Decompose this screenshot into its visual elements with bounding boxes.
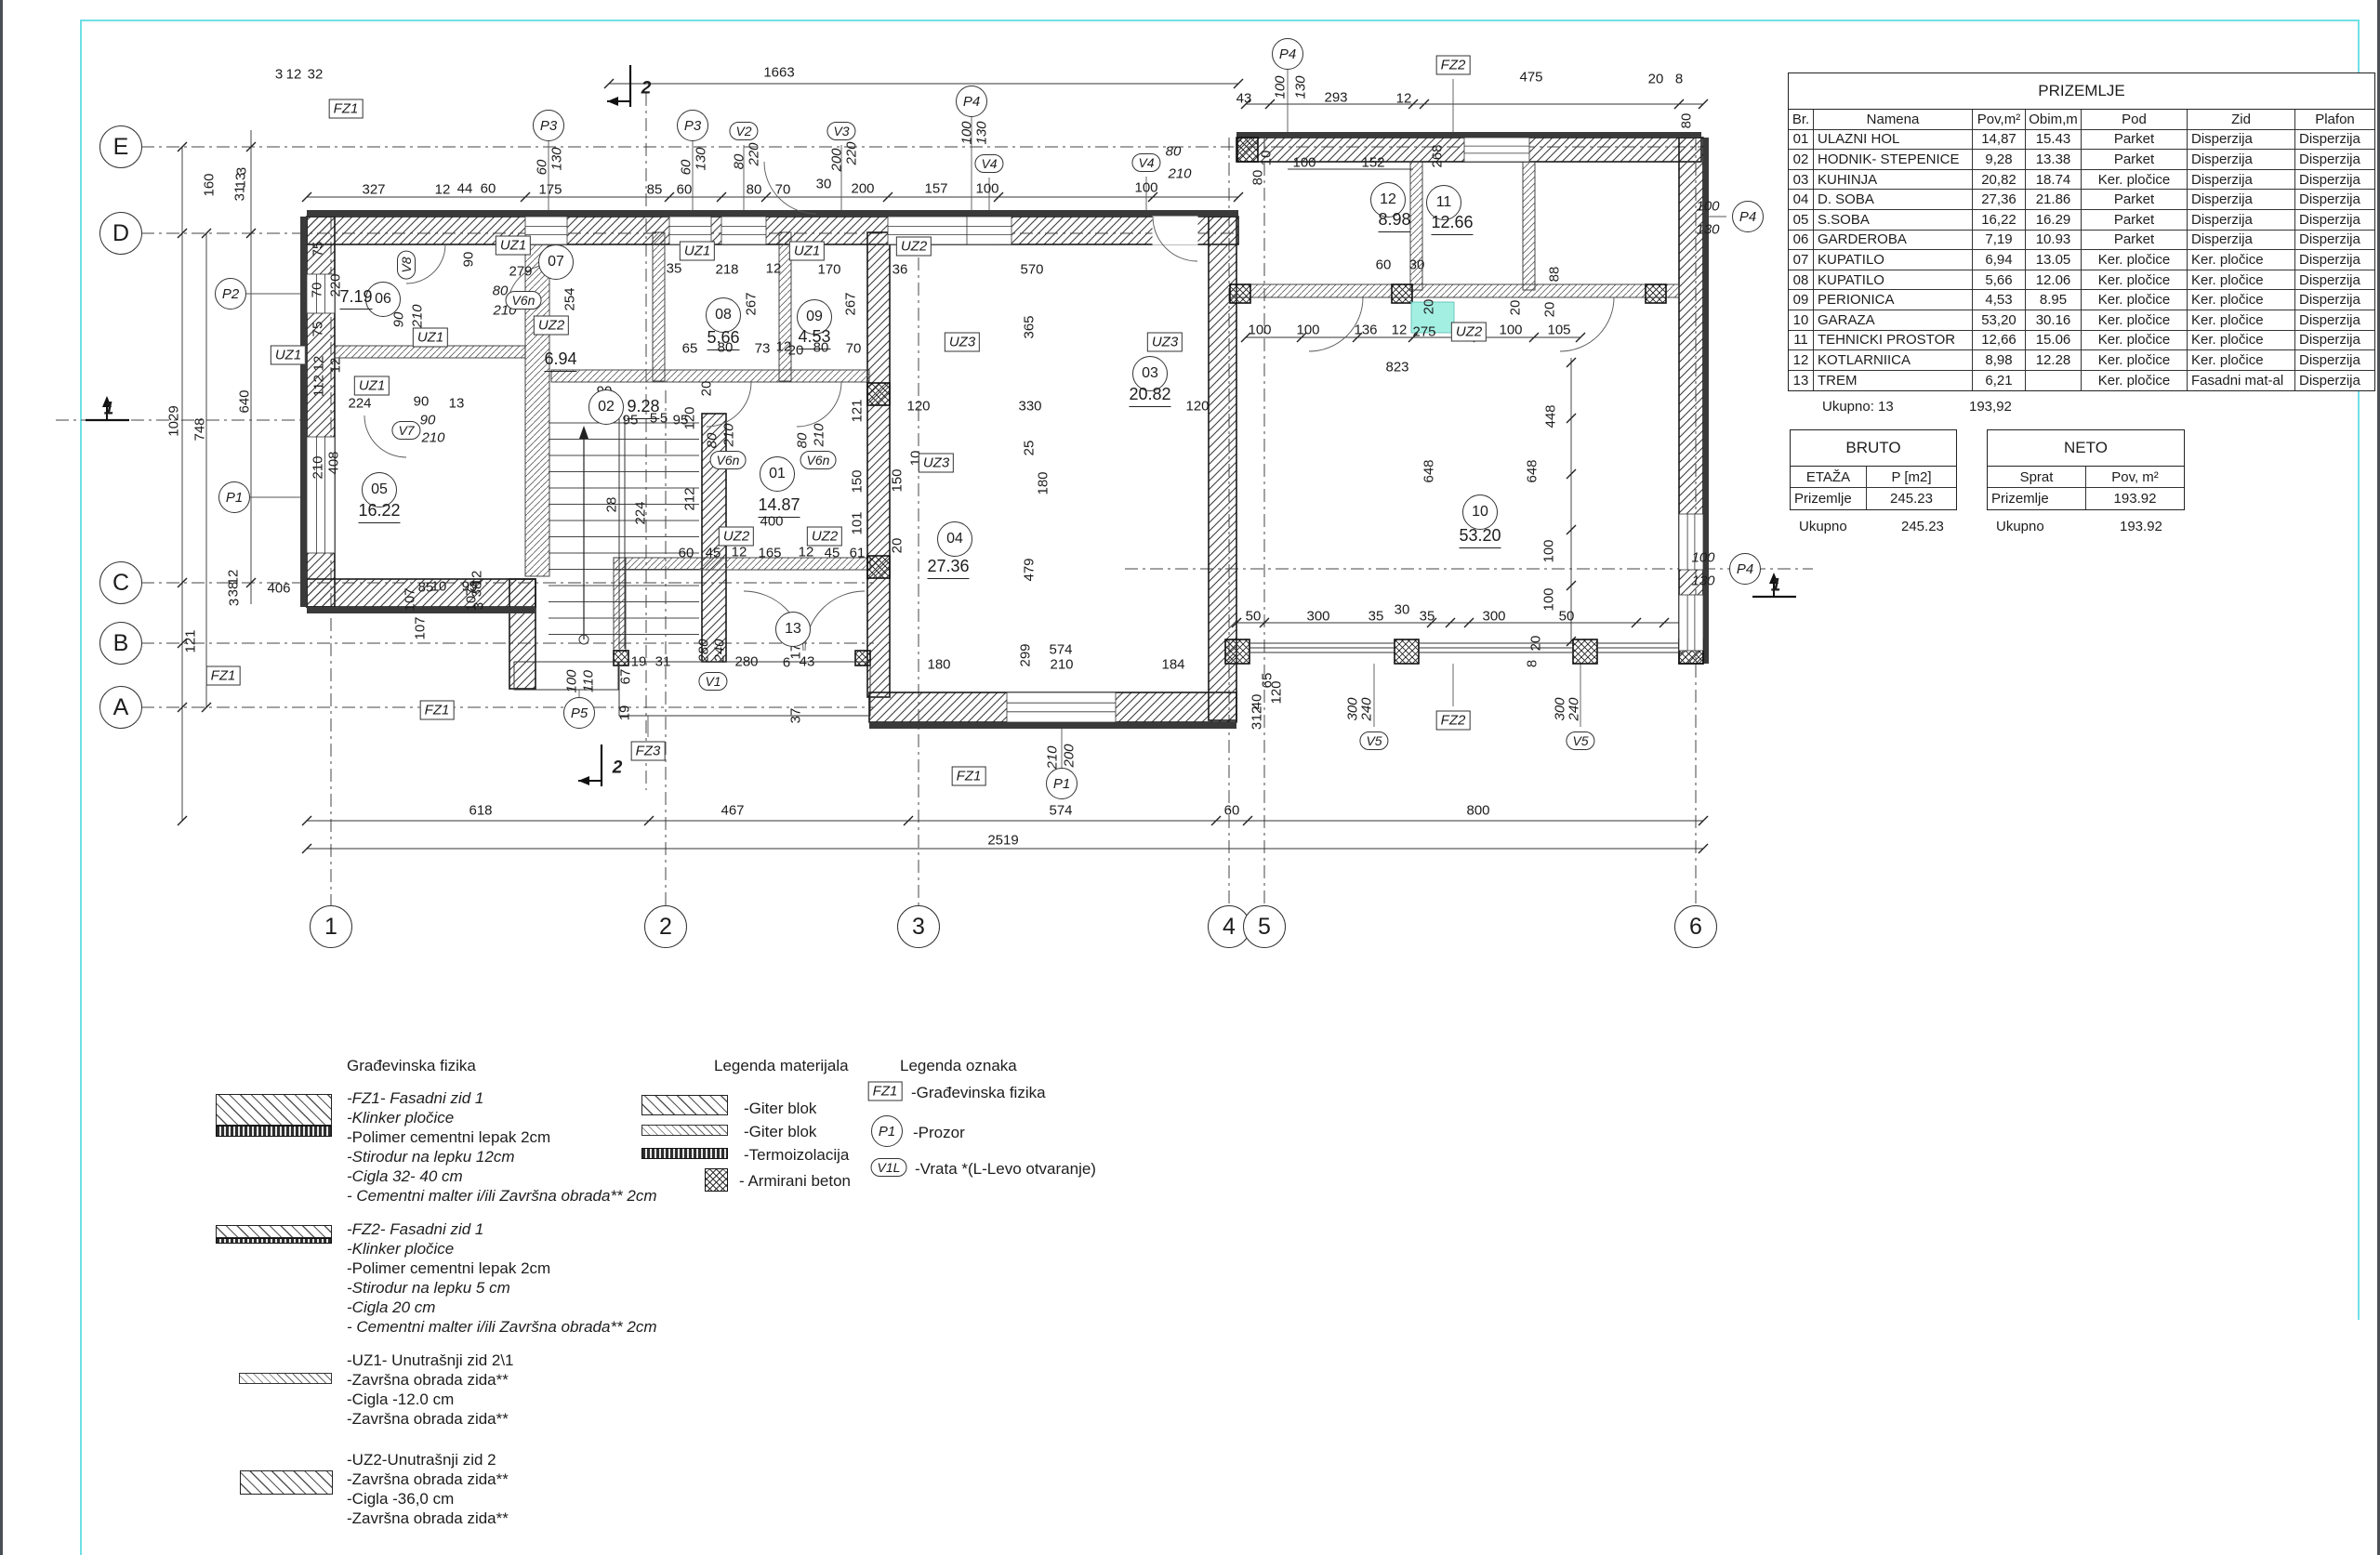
dim-label: 80 bbox=[1680, 113, 1694, 129]
door-marker: V4 bbox=[1131, 153, 1160, 172]
wall-type-tag: FZ1 bbox=[952, 767, 986, 786]
dim-label: 37 bbox=[789, 708, 803, 724]
dim-label: 448 bbox=[1544, 404, 1558, 428]
table-cell: 8,98 bbox=[1973, 350, 2026, 371]
legend-oznaka-label: -Vrata *(L-Levo otvaranje) bbox=[915, 1159, 1096, 1179]
dim-label: 80 bbox=[733, 154, 747, 170]
dim-label: 130 bbox=[1691, 574, 1714, 588]
dim-label: 90 bbox=[414, 395, 430, 409]
dim-label: 3 bbox=[235, 167, 249, 175]
legend-gf-section-text: -UZ1- Unutrašnji zid 2\1-Završna obrada … bbox=[347, 1351, 514, 1429]
table-cell: 05 bbox=[1789, 210, 1814, 231]
grid-col-bubble: 1 bbox=[310, 905, 352, 948]
prizemlje-table: PRIZEMLJEBr.NamenaPov,m²Obim,mPodZidPlaf… bbox=[1788, 72, 2375, 391]
table-cell: Disperzija bbox=[2188, 210, 2295, 231]
wall-type-tag: UZ1 bbox=[413, 328, 448, 348]
neto-footer-value: 193.92 bbox=[2120, 519, 2162, 534]
table-cell: Ker. pločice bbox=[2082, 270, 2188, 291]
table-cell: Disperzija bbox=[2188, 170, 2295, 191]
dim-label: 327 bbox=[362, 183, 385, 197]
bruto-table-title: BRUTO bbox=[1791, 430, 1956, 467]
window-marker: P4 bbox=[956, 86, 987, 117]
dim-label: 2519 bbox=[987, 834, 1018, 848]
legend-material-label: - Armirani beton bbox=[739, 1171, 851, 1191]
legend-line: -Stirodur na lepku 12cm bbox=[347, 1147, 657, 1166]
table-cell: KUPATILO bbox=[1814, 270, 1973, 291]
door-marker: V5 bbox=[1566, 731, 1594, 750]
dim-label: 280 bbox=[697, 639, 711, 662]
table-cell: 02 bbox=[1789, 150, 1814, 170]
dim-label: 20 bbox=[1648, 72, 1664, 86]
dim-label: 30 bbox=[816, 178, 832, 191]
dim-label: 90 bbox=[392, 312, 406, 328]
dim-label: 365 bbox=[1023, 315, 1037, 338]
table-cell: 193.92 bbox=[2086, 488, 2184, 509]
dim-label: 121 bbox=[184, 629, 198, 652]
legend-line: -Završna obrada zida** bbox=[347, 1509, 509, 1528]
dim-label: 648 bbox=[1526, 459, 1540, 482]
dim-label: 12 bbox=[766, 262, 782, 276]
section-marker: 1 bbox=[104, 401, 114, 418]
dim-label: 210 bbox=[421, 431, 444, 445]
dim-label: 80 bbox=[706, 433, 720, 449]
wall-type-tag: UZ2 bbox=[534, 316, 569, 336]
legend-symbol-v1l: V1L bbox=[871, 1158, 907, 1177]
dim-label: 100 bbox=[1696, 200, 1719, 214]
bruto-footer-value: 245.23 bbox=[1901, 519, 1944, 534]
dim-label: 748 bbox=[193, 417, 207, 441]
dim-label: 180 bbox=[1037, 471, 1051, 494]
bruto-footer-label: Ukupno bbox=[1799, 519, 1847, 534]
legend-swatch-fz1-insul bbox=[216, 1126, 332, 1137]
dim-label: 85 bbox=[647, 183, 663, 197]
window-marker: P3 bbox=[533, 110, 564, 141]
table-cell: 4,53 bbox=[1973, 290, 2026, 310]
dim-label: 20 bbox=[1543, 302, 1557, 318]
dim-label: 13 bbox=[449, 397, 465, 411]
table-cell: KOTLARNIICA bbox=[1814, 350, 1973, 371]
legend-line: -Klinker pločice bbox=[347, 1239, 657, 1258]
wall-type-tag: FZ1 bbox=[206, 666, 241, 686]
table-cell: Fasadni mat-al bbox=[2188, 371, 2295, 391]
wall-type-tag: FZ2 bbox=[1436, 711, 1471, 731]
dim-label: 100 bbox=[1274, 75, 1288, 99]
legend-material-label: -Giter blok bbox=[744, 1122, 816, 1141]
wall-type-tag: UZ1 bbox=[271, 346, 306, 365]
table-cell: 8.95 bbox=[2026, 290, 2082, 310]
dim-label: 130 bbox=[1294, 75, 1308, 99]
window-marker: P4 bbox=[1272, 38, 1303, 70]
dim-label: 293 bbox=[1324, 91, 1347, 105]
table-cell: Sprat bbox=[1988, 467, 2086, 488]
wall-type-tag: UZ2 bbox=[807, 527, 842, 547]
legend-swatch-giter_thin bbox=[641, 1125, 728, 1136]
table-cell: 13.05 bbox=[2026, 250, 2082, 270]
table-cell: 12 bbox=[1789, 350, 1814, 371]
dim-label: 80 bbox=[1166, 145, 1182, 159]
window-marker: P2 bbox=[215, 278, 246, 310]
door-marker: V7 bbox=[391, 421, 420, 440]
dim-label: 60 bbox=[680, 160, 694, 176]
room-area-label: 4.53 bbox=[798, 327, 830, 349]
bruto-table: BRUTOETAŽAP [m2]Prizemlje245.23 bbox=[1790, 429, 1957, 510]
table-cell: Disperzija bbox=[2295, 170, 2374, 191]
dim-label: 152 bbox=[1361, 156, 1384, 170]
table-cell: 12,66 bbox=[1973, 331, 2026, 351]
dim-label: 60 bbox=[481, 182, 496, 196]
window-marker: P3 bbox=[677, 110, 708, 141]
window-marker: P1 bbox=[1046, 768, 1078, 799]
dim-label: 299 bbox=[1019, 643, 1033, 666]
table-cell: Ker. pločice bbox=[2082, 350, 2188, 371]
dim-label: 12 bbox=[329, 358, 343, 374]
dim-label: 20 bbox=[700, 381, 714, 397]
dim-label: 267 bbox=[745, 292, 759, 315]
dim-label: 3 bbox=[1250, 722, 1264, 730]
legend-gf-section-text: -FZ1- Fasadni zid 1-Klinker pločice-Poli… bbox=[347, 1088, 657, 1206]
table-cell: 11 bbox=[1789, 331, 1814, 351]
table-cell: 9,28 bbox=[1973, 150, 2026, 170]
table-cell: 6,21 bbox=[1973, 371, 2026, 391]
legend-swatch-termo bbox=[641, 1148, 728, 1159]
legend-line: -Završna obrada zida** bbox=[347, 1409, 514, 1429]
legend-line: -Polimer cementni lepak 2cm bbox=[347, 1258, 657, 1278]
dim-label: 60 bbox=[677, 183, 693, 197]
section-marker: 1 bbox=[1771, 577, 1781, 595]
legend-swatch-giter_bold bbox=[641, 1095, 728, 1115]
door-marker: V6n bbox=[506, 291, 542, 310]
dim-label: 19 bbox=[618, 705, 632, 721]
table-cell: Br. bbox=[1789, 110, 1814, 130]
grid-col-bubble: 3 bbox=[897, 905, 940, 948]
grid-col-bubble: 2 bbox=[644, 905, 687, 948]
dim-label: 73 bbox=[755, 342, 771, 356]
table-cell: 01 bbox=[1789, 130, 1814, 151]
dim-label: 240 bbox=[1360, 697, 1374, 720]
dim-label: 475 bbox=[1519, 71, 1542, 85]
wall-type-tag: UZ2 bbox=[1451, 323, 1487, 342]
wall-type-tag: UZ3 bbox=[919, 454, 954, 473]
table-cell: Ker. pločice bbox=[2188, 290, 2295, 310]
table-cell: Disperzija bbox=[2188, 150, 2295, 170]
dim-label: 210 bbox=[813, 423, 826, 446]
dim-label: 100 bbox=[960, 121, 974, 144]
wall-type-tag: FZ3 bbox=[631, 742, 666, 761]
dim-label: 218 bbox=[715, 263, 738, 277]
table-cell: Parket bbox=[2082, 150, 2188, 170]
table-cell: Prizemlje bbox=[1791, 488, 1867, 509]
dim-label: 28 bbox=[605, 497, 619, 513]
dim-label: 100 bbox=[1691, 551, 1714, 565]
table-cell: Disperzija bbox=[2295, 331, 2374, 351]
legend-swatch-uz1 bbox=[239, 1373, 332, 1384]
room-number-bubble: 04 bbox=[937, 521, 972, 557]
dim-label: 150 bbox=[851, 469, 865, 493]
table-cell: 30.16 bbox=[2026, 310, 2082, 331]
prizemlje-footer-value: 193,92 bbox=[1969, 399, 2012, 415]
legend-line: -Cigla 20 cm bbox=[347, 1298, 657, 1317]
wall-type-tag: UZ1 bbox=[354, 376, 390, 396]
table-cell: 21.86 bbox=[2026, 190, 2082, 210]
dim-label: 45 bbox=[706, 547, 721, 560]
table-cell: Ker. pločice bbox=[2082, 310, 2188, 331]
dim-label: 200 bbox=[1063, 744, 1077, 767]
table-cell: Ker. pločice bbox=[2082, 250, 2188, 270]
dim-label: 35 bbox=[667, 262, 682, 276]
table-cell: 15.06 bbox=[2026, 331, 2082, 351]
dim-label: 170 bbox=[817, 263, 840, 277]
dim-label: 279 bbox=[509, 265, 532, 279]
dim-label: 210 bbox=[1168, 167, 1191, 181]
legend-line: - Cementni malter i/ili Završna obrada**… bbox=[347, 1186, 657, 1206]
wall-type-tag: UZ2 bbox=[719, 527, 754, 547]
table-cell: KUPATILO bbox=[1814, 250, 1973, 270]
table-cell: Disperzija bbox=[2295, 190, 2374, 210]
dim-label: 5 bbox=[660, 412, 668, 426]
table-cell: Disperzija bbox=[2188, 130, 2295, 151]
room-area-label: 14.87 bbox=[758, 495, 800, 518]
legend-line: -UZ1- Unutrašnji zid 2\1 bbox=[347, 1351, 514, 1370]
window-marker: P4 bbox=[1729, 553, 1761, 585]
room-number-bubble: 07 bbox=[538, 244, 574, 280]
dim-label: 100 bbox=[565, 669, 579, 692]
legend-materials-title: Legenda materijala bbox=[714, 1057, 849, 1075]
table-cell: 5,66 bbox=[1973, 270, 2026, 291]
dim-label: 60 bbox=[679, 547, 694, 560]
dim-label: 107 bbox=[403, 587, 417, 611]
table-cell: Pod bbox=[2082, 110, 2188, 130]
table-cell: GARAZA bbox=[1814, 310, 1973, 331]
legend-oznake-title: Legenda oznaka bbox=[900, 1057, 1017, 1075]
dim-label: 44 bbox=[457, 182, 473, 196]
dim-label: 36 bbox=[892, 263, 908, 277]
legend-line: -Cigla -36,0 cm bbox=[347, 1489, 509, 1509]
wall-type-tag: UZ1 bbox=[496, 236, 531, 256]
table-cell: Ker. pločice bbox=[2188, 331, 2295, 351]
prizemlje-footer-label: Ukupno: 13 bbox=[1822, 399, 1894, 415]
legend-oznaka-label: -Građevinska fizika bbox=[911, 1083, 1046, 1102]
dim-label: 240 bbox=[1567, 697, 1581, 720]
table-cell: TREM bbox=[1814, 371, 1973, 391]
dim-label: 220 bbox=[747, 142, 761, 165]
table-cell: 15.43 bbox=[2026, 130, 2082, 151]
table-cell: ULAZNI HOL bbox=[1814, 130, 1973, 151]
table-cell: Disperzija bbox=[2295, 290, 2374, 310]
table-cell: KUHINJA bbox=[1814, 170, 1973, 191]
table-cell: Disperzija bbox=[2188, 231, 2295, 251]
table-cell: Disperzija bbox=[2188, 190, 2295, 210]
legend-line: -Cigla -12.0 cm bbox=[347, 1390, 514, 1409]
dim-label: 240 bbox=[713, 639, 727, 662]
dim-label: 75 bbox=[311, 322, 325, 337]
dim-label: 67 bbox=[619, 669, 633, 685]
table-cell: Disperzija bbox=[2295, 231, 2374, 251]
legend-line: -FZ2- Fasadni zid 1 bbox=[347, 1219, 657, 1239]
dim-label: 120 bbox=[1185, 400, 1209, 414]
table-cell: Parket bbox=[2082, 210, 2188, 231]
table-cell: Plafon bbox=[2295, 110, 2374, 130]
table-cell: Ker. pločice bbox=[2082, 331, 2188, 351]
door-marker: V8 bbox=[397, 250, 416, 279]
dim-label: 45 bbox=[825, 547, 840, 560]
table-cell: 07 bbox=[1789, 250, 1814, 270]
window-marker: P4 bbox=[1732, 201, 1764, 232]
table-cell: HODNIK- STEPENICE bbox=[1814, 150, 1973, 170]
dim-label: 43 bbox=[1236, 92, 1252, 106]
wall-type-tag: FZ1 bbox=[420, 701, 455, 720]
dim-label: 330 bbox=[1018, 400, 1041, 414]
dim-label: 70 bbox=[311, 283, 324, 298]
door-marker: V2 bbox=[729, 122, 758, 140]
grid-row-bubble: C bbox=[99, 561, 142, 604]
table-cell: GARDEROBA bbox=[1814, 231, 1973, 251]
dim-label: 220 bbox=[845, 141, 859, 165]
dim-label: 90 bbox=[462, 252, 476, 268]
dim-label: 210 bbox=[722, 423, 736, 446]
table-cell: Parket bbox=[2082, 231, 2188, 251]
door-marker: V4 bbox=[974, 154, 1003, 173]
table-cell: 20,82 bbox=[1973, 170, 2026, 191]
table-cell: 09 bbox=[1789, 290, 1814, 310]
dim-label: 3 bbox=[228, 599, 242, 606]
table-cell: Pov, m² bbox=[2086, 467, 2184, 488]
table-cell: 03 bbox=[1789, 170, 1814, 191]
table-cell: Disperzija bbox=[2295, 371, 2374, 391]
dim-label: 12 bbox=[435, 183, 451, 197]
table-cell: 13.38 bbox=[2026, 150, 2082, 170]
legend-material-label: -Termoizolacija bbox=[744, 1145, 849, 1165]
dim-label: 408 bbox=[327, 451, 341, 474]
room-area-label: 5.66 bbox=[707, 328, 739, 350]
dim-label: 90 bbox=[420, 414, 436, 428]
dim-label: 107 bbox=[414, 616, 428, 639]
table-cell: Pov,m² bbox=[1973, 110, 2026, 130]
dim-label: 20 bbox=[1509, 300, 1523, 316]
table-cell: Obim,m bbox=[2026, 110, 2082, 130]
dim-label: 1663 bbox=[763, 66, 794, 80]
dim-label: 200 bbox=[851, 182, 874, 196]
dim-label: 12 bbox=[1392, 323, 1408, 337]
table-cell: Disperzija bbox=[2295, 250, 2374, 270]
dim-label: 210 bbox=[411, 304, 425, 327]
dim-label: 1029 bbox=[167, 405, 181, 436]
table-cell: Disperzija bbox=[2295, 270, 2374, 291]
dim-label: 210 bbox=[1046, 745, 1060, 769]
dim-label: 210 bbox=[311, 455, 325, 479]
legend-gf-section-text: -UZ2-Unutrašnji zid 2-Završna obrada zid… bbox=[347, 1450, 509, 1528]
wall-type-tag: FZ1 bbox=[329, 99, 364, 119]
table-cell: Ker. pločice bbox=[2188, 310, 2295, 331]
dim-label: 35 bbox=[1368, 610, 1384, 624]
table-cell: P [m2] bbox=[1867, 467, 1956, 488]
dim-label: 12 bbox=[799, 546, 814, 560]
dim-label: 224 bbox=[348, 397, 371, 411]
table-cell: 10.93 bbox=[2026, 231, 2082, 251]
legend-swatch-beton bbox=[705, 1168, 728, 1192]
dim-label: 570 bbox=[1020, 263, 1043, 277]
table-cell: 16,22 bbox=[1973, 210, 2026, 231]
dim-label: 267 bbox=[844, 292, 858, 315]
table-cell: 7,19 bbox=[1973, 231, 2026, 251]
room-area-label: 9.28 bbox=[627, 397, 659, 419]
dim-label: 100 bbox=[975, 182, 998, 196]
grid-row-bubble: A bbox=[99, 686, 142, 729]
dim-label: 12 bbox=[1396, 92, 1412, 106]
legend-line: -FZ1- Fasadni zid 1 bbox=[347, 1088, 657, 1108]
dim-label: 121 bbox=[851, 399, 865, 422]
table-cell: ETAŽA bbox=[1791, 467, 1867, 488]
table-cell: Namena bbox=[1814, 110, 1973, 130]
wall-type-tag: UZ3 bbox=[1147, 333, 1183, 352]
dim-label: 38 bbox=[227, 582, 241, 598]
legend-line: -Klinker pločice bbox=[347, 1108, 657, 1127]
window-marker: P5 bbox=[563, 697, 595, 729]
room-area-label: 6.94 bbox=[544, 349, 576, 372]
dim-label: 275 bbox=[1412, 325, 1435, 339]
table-cell: Prizemlje bbox=[1988, 488, 2086, 509]
dim-label: 20 bbox=[1422, 299, 1436, 315]
door-marker: V6n bbox=[800, 451, 837, 469]
grid-row-bubble: E bbox=[99, 125, 142, 168]
dim-label: 823 bbox=[1385, 361, 1408, 375]
dim-label: 61 bbox=[850, 547, 866, 560]
dim-label: 120 bbox=[906, 400, 930, 414]
dim-label: 574 bbox=[1049, 643, 1072, 657]
table-cell: 14,87 bbox=[1973, 130, 2026, 151]
dim-label: 70 bbox=[846, 342, 862, 356]
dim-label: 112 bbox=[312, 375, 326, 397]
wall-type-tag: UZ1 bbox=[680, 242, 715, 261]
legend-symbol-fz1: FZ1 bbox=[868, 1082, 903, 1101]
dim-label: 12 bbox=[312, 356, 326, 372]
dim-label: 8 bbox=[1675, 72, 1683, 86]
dim-label: 12 bbox=[1250, 706, 1264, 722]
dim-label: 467 bbox=[721, 804, 744, 818]
table-cell: Parket bbox=[2082, 190, 2188, 210]
table-cell: 08 bbox=[1789, 270, 1814, 291]
dim-label: 300 bbox=[1306, 610, 1329, 624]
dim-label: 150 bbox=[891, 468, 905, 492]
table-cell: Ker. pločice bbox=[2188, 250, 2295, 270]
dim-label: 12 bbox=[286, 68, 302, 82]
dim-label: 20 bbox=[1529, 636, 1543, 652]
table-cell: Disperzija bbox=[2295, 130, 2374, 151]
floorplan-sheet: 2211312321663327124460175856080703020015… bbox=[0, 0, 2380, 1555]
table-cell: Disperzija bbox=[2295, 210, 2374, 231]
dim-label: 100 bbox=[1542, 539, 1556, 562]
dim-label: 130 bbox=[975, 121, 989, 144]
dim-label: 110 bbox=[582, 670, 596, 692]
door-marker: V1 bbox=[698, 672, 727, 691]
table-cell: 12.06 bbox=[2026, 270, 2082, 291]
dim-label: 180 bbox=[927, 658, 950, 672]
table-cell: Disperzija bbox=[2295, 150, 2374, 170]
dim-label: 80 bbox=[796, 433, 810, 449]
dim-label: 300 bbox=[1482, 610, 1505, 624]
dim-label: 157 bbox=[924, 182, 947, 196]
dim-label: 136 bbox=[1354, 323, 1377, 337]
table-cell: Ker. pločice bbox=[2082, 170, 2188, 191]
legend-symbol-p1: P1 bbox=[871, 1115, 903, 1147]
legend-line: - Cementni malter i/ili Završna obrada**… bbox=[347, 1317, 657, 1337]
dim-label: 130 bbox=[550, 147, 564, 170]
door-marker: V3 bbox=[826, 122, 855, 140]
table-cell: 245.23 bbox=[1867, 488, 1956, 509]
table-cell: Parket bbox=[2082, 130, 2188, 151]
dim-label: 100 bbox=[1296, 323, 1319, 337]
room-area-label: 7.19 bbox=[339, 287, 372, 310]
table-cell: TEHNICKI PROSTOR bbox=[1814, 331, 1973, 351]
